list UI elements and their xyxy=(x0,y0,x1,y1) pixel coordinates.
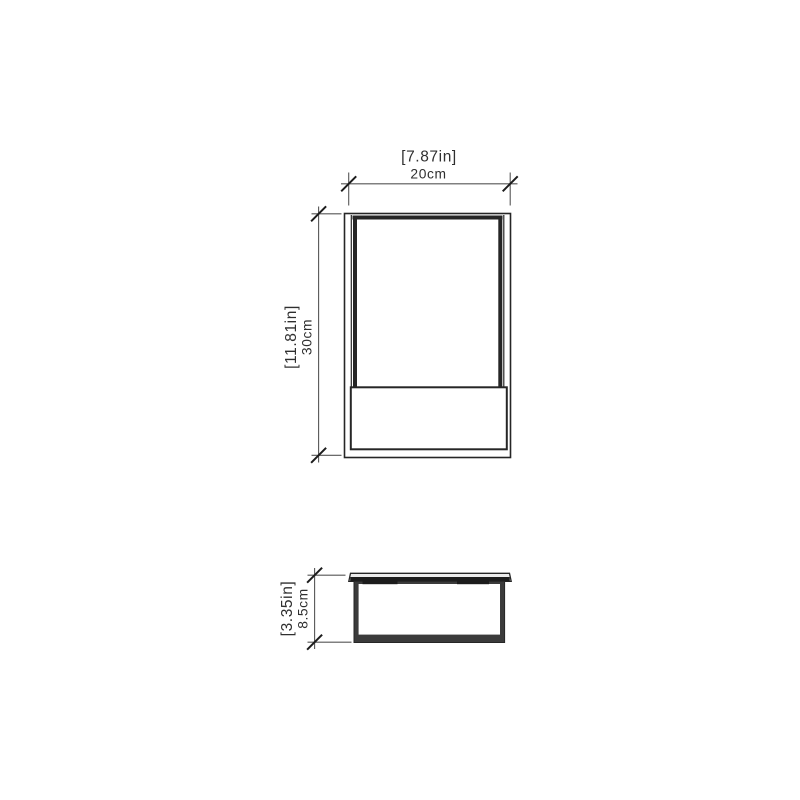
bottom-view xyxy=(349,573,511,642)
depth-label-metric: 8.5cm xyxy=(296,588,311,629)
bottom-detail-dash-right xyxy=(457,579,489,584)
bottom-detail-dash-left xyxy=(363,579,398,584)
technical-drawing: [7.87in] 20cm [11.81in] 30cm [3.35in] 8.… xyxy=(0,0,800,800)
depth-dimension: [3.35in] 8.5cm xyxy=(279,568,352,650)
height-label-imperial: [11.81in] xyxy=(283,305,300,369)
width-label-imperial: [7.87in] xyxy=(401,149,457,166)
bottom-body-interior xyxy=(359,584,500,635)
front-view xyxy=(345,214,511,458)
height-label-metric: 30cm xyxy=(300,319,315,355)
front-base-panel xyxy=(351,387,507,449)
drawing-canvas: [7.87in] 20cm [11.81in] 30cm [3.35in] 8.… xyxy=(0,0,800,800)
depth-label-imperial: [3.35in] xyxy=(279,581,296,637)
height-dimension: [11.81in] 30cm xyxy=(283,206,342,463)
width-label-metric: 20cm xyxy=(410,167,446,182)
width-dimension: [7.87in] 20cm xyxy=(341,149,518,206)
